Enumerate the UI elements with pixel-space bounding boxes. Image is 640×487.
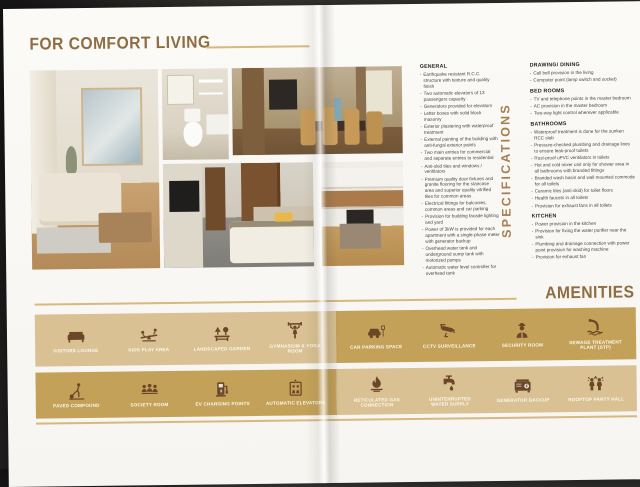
living-room-photo <box>30 69 160 270</box>
dining-chair <box>367 112 383 145</box>
toilet <box>183 121 202 147</box>
spec-item: Electrical fittings for balconies, commo… <box>421 200 499 213</box>
spec-heading: KITCHEN <box>532 212 636 219</box>
spec-item: Exterior plastering with waterproof trea… <box>420 123 498 136</box>
amenity-item: LANDSCAPED GARDEN <box>189 324 255 353</box>
spec-item: Branded wash basin and wall mounted comm… <box>531 174 635 187</box>
shelf <box>199 79 223 82</box>
spec-section-bathrooms: BATHROOMS Waterproof treatment is done f… <box>530 120 635 209</box>
amenity-label: GENERATOR BACKUP <box>497 398 550 404</box>
amenity-item: EV CHARGING POINTS <box>189 379 255 408</box>
spec-item: Provision for fixing the water purifier … <box>532 228 636 241</box>
security-guard-icon <box>512 320 532 340</box>
spec-item: Plumbing and drainage connection with po… <box>532 241 636 254</box>
amenity-label: VISITORS LOUNGE <box>53 348 98 354</box>
spec-item: Two automatic elevators of 13 passengers… <box>420 90 498 103</box>
amenity-item: GYMNASIUM & YOGA ROOM <box>262 320 328 355</box>
spec-section-drawing-dining: DRAWING/ DINING Call bell provision in t… <box>530 61 634 84</box>
spec-item: AC provision in the master bedroom <box>530 102 634 109</box>
plant <box>65 146 77 174</box>
amenity-label: GYMNASIUM & YOGA ROOM <box>265 343 325 355</box>
lower-cabinet <box>340 224 381 249</box>
seesaw-icon <box>139 325 159 345</box>
spec-section-kitchen: KITCHEN Power provision in the kitchenPr… <box>532 212 637 261</box>
coffee-table <box>98 212 152 242</box>
spec-list: TV and telephone points in the master be… <box>530 95 634 116</box>
amenity-label: SECURITY ROOM <box>502 343 543 349</box>
spec-item: Earthquake resistant R.C.C. structure wi… <box>420 71 498 90</box>
cabinet-panel <box>242 68 265 155</box>
gas-icon <box>367 374 387 394</box>
water-tap-icon <box>440 373 460 393</box>
dining-room-photo <box>232 66 403 155</box>
amenity-label: AUTOMATIC ELEVATORS <box>266 400 326 406</box>
amenity-item: UNINTERRUPTED WATER SUPPLY <box>417 373 483 408</box>
spec-item: Power provision in the kitchen <box>532 220 636 227</box>
spec-item: Call bell provision in the living <box>530 69 634 76</box>
amenity-item: PAVED COMPOUND <box>43 381 109 410</box>
page-title: FOR COMFORT LIVING <box>29 32 210 54</box>
spec-item: Provision for exhaust fans in all toilet… <box>531 202 635 209</box>
car-parking-icon <box>366 322 386 342</box>
society-icon <box>139 380 159 400</box>
amenities-block-4: RETICULATED GAS CONNECTION UNINTERRUPTED… <box>336 365 637 415</box>
vase <box>334 98 341 121</box>
spec-item: Power of 3kW is provided for each apartm… <box>422 226 500 245</box>
amenity-item: RETICULATED GAS CONNECTION <box>344 374 410 409</box>
tv-niche <box>269 80 297 110</box>
spec-list: Waterproof treatment is done for the sun… <box>531 128 636 209</box>
cctv-icon <box>439 321 459 341</box>
ev-charging-icon <box>212 379 232 399</box>
amenity-label: SOCIETY ROOM <box>130 402 168 408</box>
spec-item: Two main entries for commercial and sepa… <box>421 149 499 162</box>
spec-item: External painting of the building with a… <box>421 136 499 149</box>
spec-item: Two-way light control wherever applicabl… <box>530 110 634 117</box>
brochure-page: FOR COMFORT LIVING <box>3 1 640 487</box>
door <box>205 167 225 230</box>
spec-heading: BATHROOMS <box>530 120 634 127</box>
spec-list: Power provision in the kitchenProvision … <box>532 220 636 260</box>
bed <box>230 220 315 263</box>
upper-cabinets <box>321 167 403 189</box>
kitchen-photo <box>321 161 404 266</box>
amenity-item: KIDS PLAY AREA <box>116 325 182 354</box>
oven <box>346 209 374 224</box>
amenity-label: PAVED COMPOUND <box>53 403 100 409</box>
amenity-item: AUTOMATIC ELEVATORS <box>262 378 328 407</box>
amenities-row-1: VISITORS LOUNGE KIDS PLAY AREA LANDSCAPE… <box>35 307 637 366</box>
spec-item: Anti-skid tiles and windows / ventilator… <box>421 162 499 175</box>
spec-item: Hot and cold mixer unit only for shower … <box>531 161 635 174</box>
spec-heading: BED ROOMS <box>530 87 634 94</box>
spec-heading-general: GENERAL <box>420 63 498 70</box>
spec-item: Computer point (lamp switch and socket) <box>530 77 634 84</box>
spec-list-general: Earthquake resistant R.C.C. structure wi… <box>420 71 500 277</box>
dining-chair <box>300 109 316 146</box>
spec-list: Call bell provision in the livingCompute… <box>530 69 634 83</box>
wall-panel <box>163 164 203 268</box>
spec-item: Pressure-checked plumbing and drainage l… <box>531 141 635 154</box>
amenities-title: AMENITIES <box>524 282 635 303</box>
amenity-item: CCTV SURVEILLANCE <box>416 321 482 350</box>
elevator-icon <box>285 378 305 398</box>
spec-item: Automatic water level controller for ove… <box>422 264 500 277</box>
amenity-item: CAR PARKING SPACE <box>343 322 409 351</box>
spec-item: Provision for building facade lighting a… <box>422 213 500 226</box>
pillow <box>275 212 293 222</box>
amenity-item: GENERATOR BACKUP <box>490 375 556 404</box>
party-icon <box>586 375 606 395</box>
amenity-item: VISITORS LOUNGE <box>42 326 108 355</box>
spec-item: Premium quality door fixtures and granit… <box>421 176 499 200</box>
spec-item: Rust-proof uPVC ventilators in toilets <box>531 154 635 161</box>
photo-collage <box>30 66 404 270</box>
spec-item: Health faucets in all toilets <box>531 195 635 202</box>
sewage-icon <box>585 317 605 337</box>
bedroom-photo <box>163 162 314 268</box>
amenities-block-3: PAVED COMPOUND SOCIETY ROOM EV CHARGING … <box>35 369 336 419</box>
dining-chair <box>344 108 360 145</box>
specifications-sections: DRAWING/ DINING Call bell provision in t… <box>530 61 636 265</box>
amenities-row-2: PAVED COMPOUND SOCIETY ROOM EV CHARGING … <box>35 365 637 418</box>
amenities-block-2: CAR PARKING SPACE CCTV SURVEILLANCE SECU… <box>335 307 636 363</box>
toilet-tank <box>185 109 201 122</box>
shelf <box>199 92 223 95</box>
sofa-icon <box>65 326 85 346</box>
spec-item: Overhead water tank and underground sump… <box>422 245 500 264</box>
amenity-item: ROOFTOP PARTY HALL <box>563 374 629 403</box>
amenity-label: KIDS PLAY AREA <box>128 347 169 353</box>
window <box>364 71 392 115</box>
bathroom-photo <box>162 68 229 160</box>
spec-item: Generators provided for elevators <box>420 103 498 110</box>
amenity-item: SEWAGE TREATMENT PLANT (STP) <box>562 316 628 351</box>
amenity-label: SEWAGE TREATMENT PLANT (STP) <box>566 339 626 351</box>
amenities-rule <box>35 298 517 305</box>
tv <box>169 180 199 212</box>
spec-item: Letter boxes with solid block masonry <box>420 110 498 123</box>
title-rule <box>206 45 309 48</box>
spec-section-bed-rooms: BED ROOMS TV and telephone points in the… <box>530 87 634 117</box>
amenity-label: CAR PARKING SPACE <box>350 345 402 351</box>
amenity-label: EV CHARGING POINTS <box>195 401 249 407</box>
amenity-item: SOCIETY ROOM <box>116 380 182 409</box>
garden-icon <box>212 324 232 344</box>
spec-item: Ceramic tiles (anti-skid) for toilet flo… <box>531 187 635 194</box>
specifications-general: GENERAL Earthquake resistant R.C.C. stru… <box>420 63 501 278</box>
generator-icon <box>513 375 533 395</box>
amenity-item: SECURITY ROOM <box>489 320 555 349</box>
amenity-label: CCTV SURVEILLANCE <box>423 344 476 350</box>
amenity-label: RETICULATED GAS CONNECTION <box>347 397 407 409</box>
gym-icon <box>285 320 305 340</box>
specifications-vertical-label: SPECIFICATIONS <box>498 61 525 281</box>
bathroom-window <box>167 75 194 105</box>
wall-art <box>81 87 142 165</box>
backsplash <box>321 190 403 207</box>
spec-heading: DRAWING/ DINING <box>530 61 634 68</box>
spec-item: TV and telephone points in the master be… <box>530 95 634 102</box>
spec-item: Waterproof treatment is done for the sun… <box>531 128 635 141</box>
amenity-label: ROOFTOP PARTY HALL <box>568 397 624 403</box>
paved-compound-icon <box>66 381 86 401</box>
amenity-label: LANDSCAPED GARDEN <box>194 346 251 352</box>
amenities-block-1: VISITORS LOUNGE KIDS PLAY AREA LANDSCAPE… <box>35 311 336 367</box>
spec-item: Provision for exhaust fan <box>532 254 636 261</box>
vanity <box>206 114 229 134</box>
amenity-label: UNINTERRUPTED WATER SUPPLY <box>420 396 480 408</box>
